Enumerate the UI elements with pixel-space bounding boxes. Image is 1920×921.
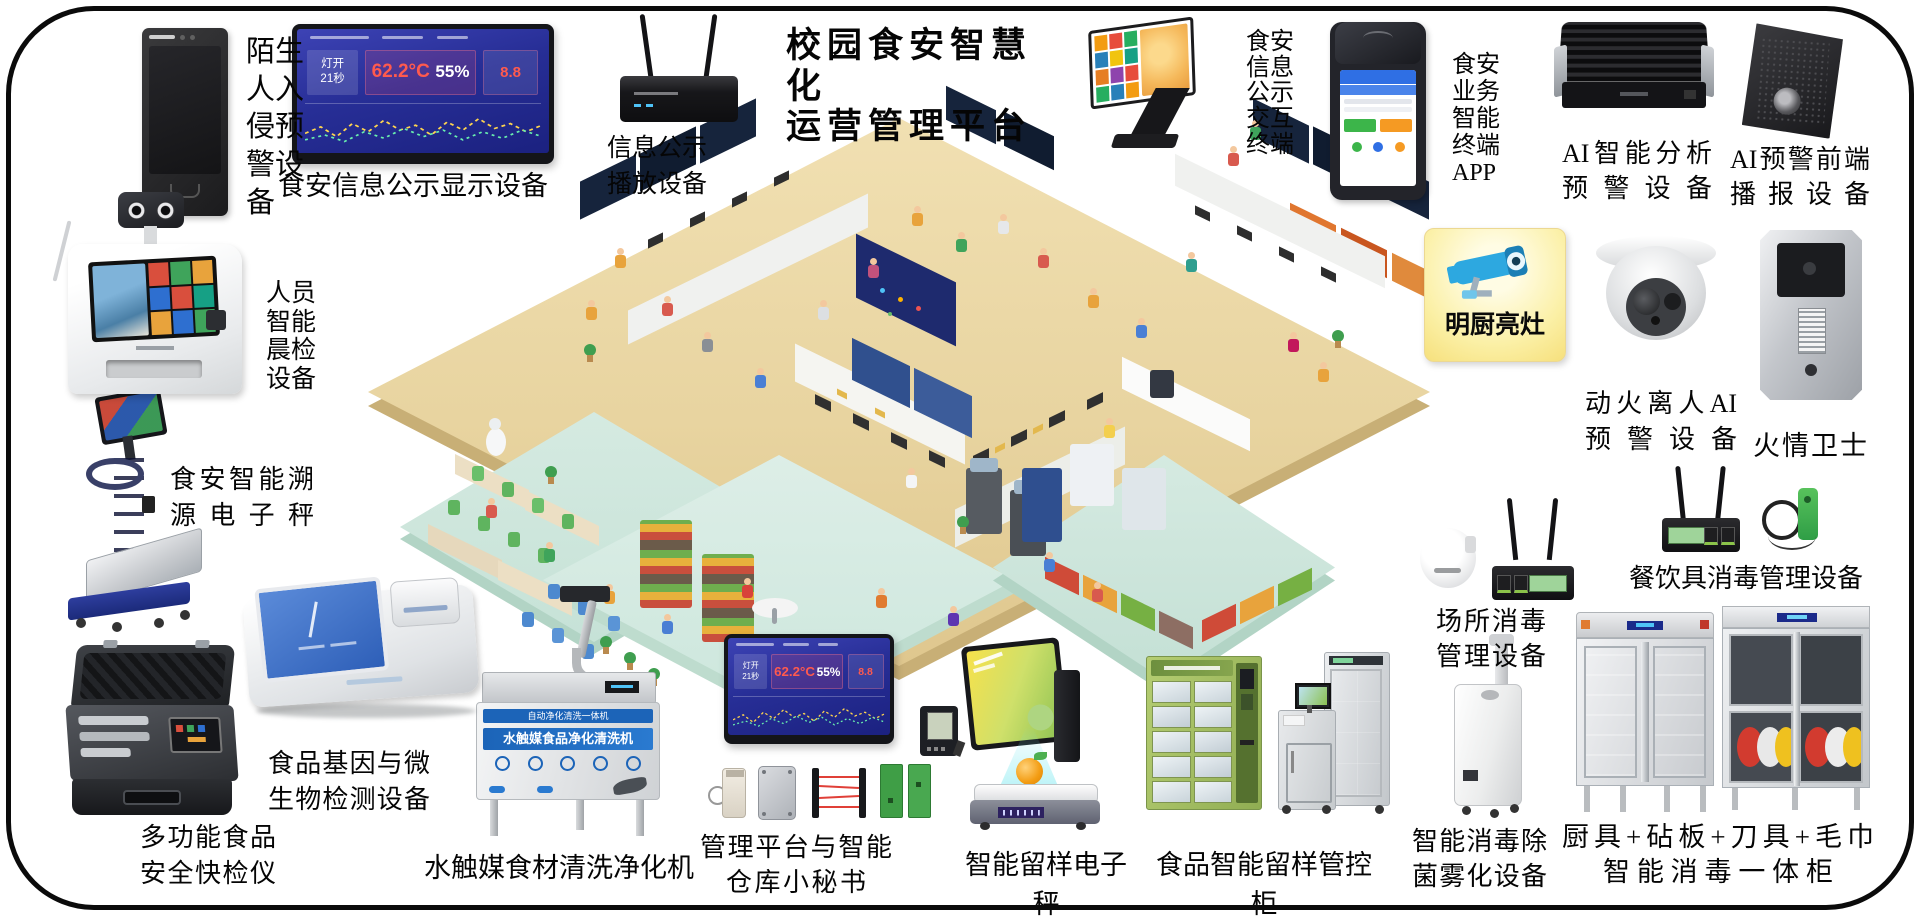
scene-dot — [898, 297, 903, 302]
person-figure — [956, 232, 967, 252]
person-figure — [1088, 288, 1099, 308]
sanitizer-slot — [106, 360, 202, 378]
label-place-disinfect: 场所消毒 管理设备 — [1436, 604, 1546, 674]
device-screen — [1777, 243, 1845, 297]
person-figure — [702, 332, 713, 352]
person-figure — [755, 368, 766, 388]
scene-prop — [1195, 205, 1210, 221]
scene-prop — [448, 500, 460, 515]
scene-prop — [1022, 468, 1062, 542]
page-title: 校园食安智慧化 运营管理平台 — [786, 26, 1026, 148]
smoke-detector — [1420, 528, 1478, 600]
dome-camera — [1592, 236, 1720, 348]
sensor-plate — [758, 766, 796, 820]
label-trace-scale: 食安智能溯 源电子秤 — [170, 462, 314, 534]
person-figure — [948, 606, 959, 626]
person-figure — [544, 542, 555, 562]
bright-kitchen-card: 明厨亮灶 — [1424, 228, 1566, 362]
plant — [543, 466, 559, 484]
person-figure — [912, 206, 923, 226]
person-figure — [1092, 582, 1103, 602]
scene-prop — [532, 498, 544, 513]
person-figure — [1038, 248, 1049, 268]
printer-hump — [1335, 22, 1421, 64]
plant — [1330, 330, 1346, 348]
scene-dot — [916, 306, 921, 311]
person-figure — [868, 258, 879, 278]
scene-prop — [1237, 225, 1252, 241]
label-fog-machine: 智能消毒除 菌雾化设备 — [1412, 824, 1547, 894]
stranger-detect-device — [142, 28, 228, 216]
morning-check-device — [52, 192, 250, 404]
scene-prop — [1150, 370, 1174, 398]
person-figure — [1288, 332, 1299, 352]
fire-guard-device — [1760, 230, 1862, 400]
analyzer-screen — [254, 576, 389, 683]
scene-prop — [970, 458, 998, 472]
person-figure — [906, 468, 917, 488]
label-quick-test: 多功能食品 安全快检仪 — [140, 820, 276, 892]
orange-fruit — [1016, 758, 1043, 785]
label-washer: 水触媒食材清洗净化机 — [420, 846, 698, 885]
label-ai-broadcast: AI预警前端 播报设备 — [1730, 142, 1870, 212]
label-bright-kitchen: 明厨亮灶 — [1425, 305, 1565, 341]
mgmt-dashboard-screen: 灯开21秒 62.2°C55% 8.8 — [728, 638, 890, 735]
disinfect-cabinet-four-door — [1722, 606, 1870, 810]
sensor-dispenser — [714, 768, 746, 820]
person-figure — [1186, 252, 1197, 272]
ai-analysis-server — [1558, 20, 1710, 108]
pos-terminal — [1330, 22, 1426, 200]
dashboard-chart — [305, 103, 542, 146]
scene-prop — [486, 428, 506, 456]
scene-prop — [1279, 246, 1294, 262]
temp-humidity-card: 62.2°C55% — [365, 50, 476, 95]
tableware-tag — [1762, 486, 1824, 554]
scale-handle — [86, 458, 144, 490]
broadcast-router — [620, 14, 738, 126]
cctv-camera-icon — [1447, 243, 1543, 299]
person-figure — [615, 248, 626, 268]
sample-scale — [958, 642, 1110, 830]
sensor-pcb-tags — [880, 764, 932, 818]
scene-prop — [1122, 468, 1166, 530]
person-figure — [662, 296, 673, 316]
scene-prop — [502, 482, 514, 497]
scene-prop — [562, 514, 574, 529]
label-disinfect-cabinet: 厨具+砧板+刀具+毛巾 智能消毒一体柜 — [1562, 820, 1874, 890]
tester-screen — [168, 717, 223, 753]
person-figure — [1318, 362, 1329, 382]
person-figure — [998, 214, 1009, 234]
label-sample-scale: 智能留样电子秤 — [952, 843, 1140, 921]
scene-dot — [888, 312, 892, 316]
label-mgmt-platform: 管理平台与智能 仓库小秘书 — [700, 830, 892, 900]
kiosk-base — [1111, 134, 1180, 148]
place-disinfect-router — [1492, 498, 1574, 600]
alert-card: 8.8 — [483, 50, 538, 95]
camera-dot-icon — [180, 35, 185, 40]
person-figure — [486, 498, 497, 518]
label-sample-cabinet: 食品智能留样管控柜 — [1145, 843, 1383, 921]
scene-prop — [478, 516, 490, 531]
ai-broadcast-speaker — [1741, 23, 1843, 139]
camera-lens — [1633, 288, 1660, 315]
gene-detector — [246, 572, 484, 720]
plant — [582, 344, 598, 362]
scene-prop — [1321, 266, 1336, 282]
label-fire-ai: 动火离人AI 预警设备 — [1585, 386, 1737, 458]
scene-prop — [772, 608, 777, 624]
pos-orange-button — [1380, 119, 1412, 132]
label-morning-check: 人员智能晨检设备 — [266, 280, 320, 394]
washer-banner-text: 水触媒食品净化清洗机 — [483, 728, 653, 750]
washer-machine: 自动净化清洗一体机 水触媒食品净化清洗机 — [476, 586, 668, 838]
sensor-light-curtain — [812, 768, 866, 818]
router-body — [620, 76, 738, 122]
mgmt-monitor: 灯开21秒 62.2°C55% 8.8 — [724, 634, 894, 744]
status-light — [149, 35, 175, 39]
person-figure — [1044, 552, 1055, 572]
device-screen — [149, 46, 221, 174]
kiosk-device — [1085, 24, 1219, 158]
label-display-monitor: 食安信息公示显示设备 — [268, 164, 558, 203]
display-monitor: 灯开21秒 62.2°C55% 8.8 — [292, 24, 554, 164]
plant — [955, 516, 971, 534]
person-figure — [586, 300, 597, 320]
person-figure — [876, 588, 887, 608]
label-gene-test: 食品基因与微 生物检测设备 — [268, 746, 430, 818]
label-kiosk: 食安信息公示交互终端 — [1246, 30, 1296, 158]
person-figure — [1104, 418, 1115, 438]
person-figure — [742, 578, 753, 598]
check-screen — [88, 256, 220, 343]
sensor-temp-logger — [920, 706, 958, 756]
scene-dot — [880, 288, 885, 293]
label-tableware: 餐饮具消毒管理设备 — [1622, 558, 1870, 595]
scene-prop — [702, 554, 754, 642]
label-fire-guard: 火情卫士 — [1752, 424, 1870, 463]
person-figure — [818, 300, 829, 320]
scale-ad-screen — [961, 637, 1069, 751]
scene-prop — [508, 532, 520, 547]
thermal-lens — [1664, 293, 1681, 310]
label-ai-analysis: AI智能分析 预警设备 — [1562, 136, 1712, 206]
quick-test-case — [68, 645, 238, 817]
camera-dot-icon — [190, 35, 195, 40]
eyes-camera — [118, 192, 184, 228]
scene-prop — [966, 468, 1002, 534]
fish-graphic — [612, 776, 648, 796]
scale-lcd — [998, 807, 1044, 818]
sample-cart — [1278, 652, 1390, 814]
cart-monitor — [1295, 683, 1331, 709]
label-broadcast-router: 信息公示 播放设备 — [607, 128, 707, 200]
scene-prop — [1070, 444, 1114, 506]
washer-strip-text: 自动净化清洗一体机 — [483, 709, 653, 723]
locker-banner — [1151, 660, 1233, 676]
pos-screen — [1340, 70, 1416, 186]
scene-prop — [472, 466, 484, 481]
pos-green-button — [1344, 119, 1376, 132]
locker-screen — [1240, 669, 1254, 689]
dashboard-screen: 灯开21秒 62.2°C55% 8.8 — [297, 29, 549, 153]
scene-dot — [489, 418, 501, 430]
tableware-router — [1662, 466, 1740, 552]
analyzer-printer — [390, 577, 461, 628]
person-figure — [1136, 318, 1147, 338]
sample-locker — [1146, 656, 1262, 810]
lamp-card: 灯开21秒 — [307, 50, 358, 95]
person-figure — [1228, 146, 1239, 166]
disinfect-cabinet-glass — [1576, 612, 1714, 812]
label-pos-app: 食安业务智能终端APP — [1452, 52, 1504, 186]
